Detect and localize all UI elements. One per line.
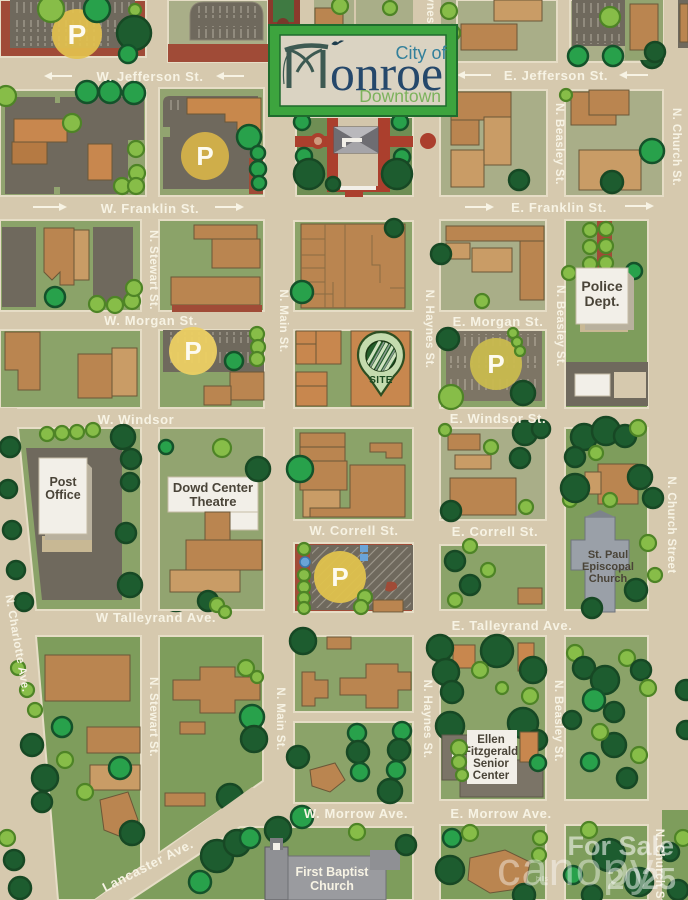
svg-text:N. Beasley St.: N. Beasley St. <box>553 103 565 185</box>
svg-text:E. Morgan St.: E. Morgan St. <box>453 314 544 329</box>
svg-text:Police: Police <box>581 278 622 294</box>
svg-text:W. Morgan St.: W. Morgan St. <box>104 313 198 328</box>
svg-text:P: P <box>487 349 504 379</box>
svg-text:Senior: Senior <box>473 758 509 770</box>
svg-text:W. Correll St.: W. Correll St. <box>309 523 398 538</box>
svg-text:N. Beasley St.: N. Beasley St. <box>552 680 564 762</box>
svg-text:W Talleyrand Ave.: W Talleyrand Ave. <box>96 610 216 625</box>
svg-text:E. Talleyrand Ave.: E. Talleyrand Ave. <box>452 618 573 633</box>
svg-text:Center: Center <box>473 770 510 782</box>
svg-text:E. Correll St.: E. Correll St. <box>452 524 538 539</box>
svg-text:N. Church St.: N. Church St. <box>670 108 682 186</box>
svg-text:Dowd Center: Dowd Center <box>173 480 253 495</box>
svg-text:hills: hills <box>536 876 549 883</box>
svg-text:P: P <box>184 336 201 366</box>
svg-text:Fitzgerald: Fitzgerald <box>464 746 518 758</box>
svg-text:Ellen: Ellen <box>477 734 504 746</box>
svg-text:St. Paul: St. Paul <box>588 549 628 561</box>
svg-text:2025: 2025 <box>607 861 676 896</box>
svg-text:W. Franklin St.: W. Franklin St. <box>101 201 200 216</box>
svg-text:E. Windsor St.: E. Windsor St. <box>450 411 546 426</box>
svg-text:Office: Office <box>45 488 80 502</box>
svg-text:First Baptist: First Baptist <box>296 865 370 879</box>
svg-text:N. Haynes St.: N. Haynes St. <box>423 290 435 369</box>
svg-text:W. Windsor: W. Windsor <box>98 412 175 427</box>
svg-text:Downtown: Downtown <box>359 86 441 106</box>
svg-text:P: P <box>331 562 348 592</box>
svg-text:N. Beasley St.: N. Beasley St. <box>554 285 566 367</box>
svg-text:W. Jefferson St.: W. Jefferson St. <box>96 69 203 84</box>
svg-text:P: P <box>68 19 87 50</box>
svg-text:SITE: SITE <box>369 375 392 386</box>
svg-text:N. Church Street: N. Church Street <box>665 476 677 573</box>
svg-text:N. Haynes St.: N. Haynes St. <box>421 680 433 759</box>
svg-text:N. Stewart St.: N. Stewart St. <box>147 677 159 757</box>
svg-text:Theatre: Theatre <box>190 494 237 509</box>
svg-text:N. Main St.: N. Main St. <box>277 289 289 352</box>
svg-text:E. Jefferson St.: E. Jefferson St. <box>504 68 608 83</box>
svg-text:Post: Post <box>49 475 77 489</box>
svg-text:N. Main St.: N. Main St. <box>274 687 286 750</box>
svg-text:Church: Church <box>310 879 354 893</box>
svg-text:P: P <box>196 141 213 171</box>
svg-text:Episcopal: Episcopal <box>582 561 634 573</box>
svg-text:Dept.: Dept. <box>585 293 620 309</box>
svg-text:W. Morrow Ave.: W. Morrow Ave. <box>304 806 408 821</box>
svg-text:Church: Church <box>589 573 628 585</box>
svg-text:N. Stewart St.: N. Stewart St. <box>147 230 159 310</box>
svg-text:E. Franklin St.: E. Franklin St. <box>511 200 607 215</box>
svg-text:E. Morrow Ave.: E. Morrow Ave. <box>450 806 551 821</box>
